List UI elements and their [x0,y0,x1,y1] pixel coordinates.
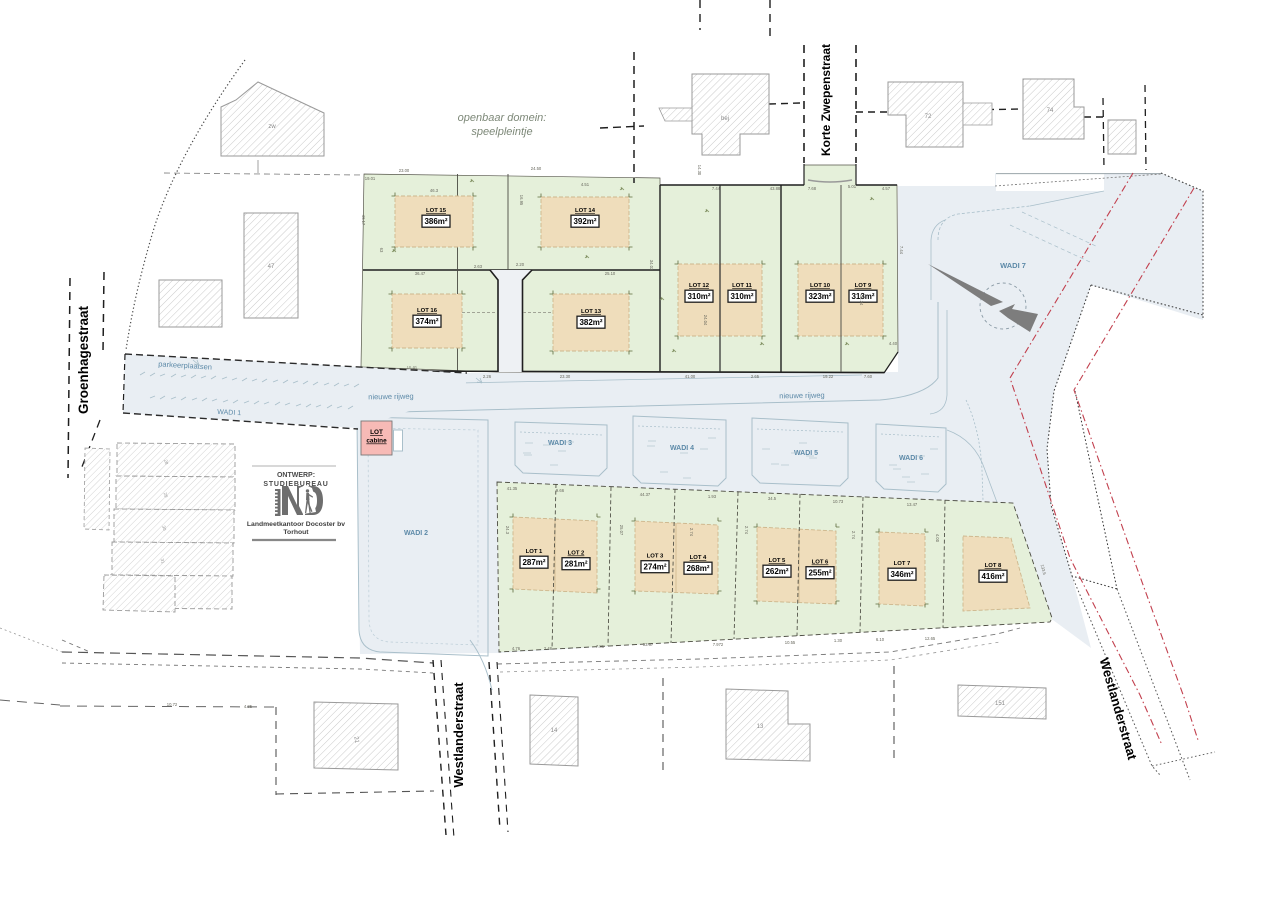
svg-text:2.74: 2.74 [851,531,856,540]
svg-text:LOT 11: LOT 11 [732,283,752,289]
svg-text:374m²: 374m² [415,317,438,326]
svg-text:74: 74 [1047,108,1054,114]
svg-text:LOT 12: LOT 12 [689,283,710,289]
svg-text:2.74: 2.74 [689,528,694,537]
svg-text:19.01: 19.01 [365,176,376,181]
svg-text:46.3: 46.3 [430,188,439,193]
svg-text:LOT 7: LOT 7 [894,561,911,567]
svg-text:4.40: 4.40 [889,341,898,346]
svg-text:310m²: 310m² [687,292,710,301]
svg-text:7.44: 7.44 [899,246,904,255]
svg-text:287m²: 287m² [522,558,545,567]
svg-text:4.35: 4.35 [244,704,253,709]
svg-text:262m²: 262m² [765,567,788,576]
svg-text:19.22: 19.22 [823,374,834,379]
svg-text:7.60: 7.60 [864,374,873,379]
svg-text:LOT 13: LOT 13 [581,309,602,315]
svg-text:255m²: 255m² [808,569,831,578]
svg-text:7.44: 7.44 [712,186,721,191]
svg-text:13.47: 13.47 [907,502,918,507]
svg-text:9.66: 9.66 [556,488,565,493]
svg-text:Torhout: Torhout [283,529,309,536]
svg-text:LOT 9: LOT 9 [855,283,872,289]
svg-text:151: 151 [995,701,1006,707]
svg-text:2.74: 2.74 [744,526,749,535]
svg-text:Westlanderstraat: Westlanderstraat [451,682,466,788]
svg-text:310m²: 310m² [730,292,753,301]
svg-text:25.07: 25.07 [619,525,624,536]
svg-text:14.30: 14.30 [697,165,702,176]
svg-text:281m²: 281m² [564,560,587,569]
svg-text:WADI 1: WADI 1 [217,409,241,417]
svg-text:speelpleintje: speelpleintje [471,126,532,138]
svg-text:LOT 14: LOT 14 [575,208,596,214]
svg-text:1.30: 1.30 [834,638,843,643]
svg-text:16.95: 16.95 [519,195,524,206]
svg-text:LOT: LOT [370,429,383,436]
svg-text:268m²: 268m² [686,564,709,573]
svg-text:44.37: 44.37 [640,492,651,497]
svg-text:15.41: 15.41 [407,365,418,371]
svg-text:24.3: 24.3 [505,526,510,535]
svg-text:LOT 5: LOT 5 [769,558,786,564]
svg-text:LOT 8: LOT 8 [985,563,1002,569]
svg-text:23.30: 23.30 [560,374,571,379]
svg-text:2.26: 2.26 [483,374,492,379]
svg-text:24.04: 24.04 [703,315,708,326]
svg-text:LOT 16: LOT 16 [417,308,438,314]
svg-text:10.73: 10.73 [833,499,844,504]
svg-text:nieuwe rijweg: nieuwe rijweg [368,392,414,402]
svg-text:4.51: 4.51 [581,182,590,187]
svg-text:zw: zw [268,124,276,130]
svg-text:WADI 3: WADI 3 [548,440,572,447]
svg-text:4.76: 4.76 [512,646,521,651]
svg-text:LOT 1: LOT 1 [526,549,543,555]
svg-text:32.34: 32.34 [859,295,864,306]
svg-text:1.93: 1.93 [708,494,717,499]
svg-text:2.20: 2.20 [516,262,525,267]
svg-text:12.65: 12.65 [925,636,936,641]
svg-text:2.65: 2.65 [751,374,760,379]
svg-text:63: 63 [379,248,384,253]
svg-text:34.03: 34.03 [649,260,654,271]
svg-text:7.81: 7.81 [596,644,605,649]
svg-text:416m²: 416m² [981,572,1004,581]
svg-text:Groenhagestraat: Groenhagestraat [76,305,91,414]
svg-text:Korte Zwepenstraat: Korte Zwepenstraat [819,44,833,156]
svg-text:bej: bej [721,116,729,122]
svg-text:24.50: 24.50 [531,166,542,171]
svg-text:274m²: 274m² [643,563,666,572]
svg-text:41.00: 41.00 [685,374,696,379]
svg-text:10.55: 10.55 [785,640,796,645]
svg-text:WADI 4: WADI 4 [670,445,694,452]
svg-text:386m²: 386m² [424,217,447,226]
svg-text:10.72: 10.72 [167,702,178,707]
svg-text:13: 13 [757,724,764,730]
svg-text:34.5: 34.5 [768,496,777,501]
svg-text:7.68: 7.68 [808,186,817,191]
svg-text:cabine: cabine [366,438,387,445]
svg-text:6.10: 6.10 [876,637,885,642]
svg-text:4.57: 4.57 [882,186,891,191]
svg-text:LOT 10: LOT 10 [810,283,831,289]
svg-text:346m²: 346m² [890,570,913,579]
svg-text:LOT 15: LOT 15 [426,208,447,214]
svg-text:4.00: 4.00 [935,534,940,543]
svg-text:LOT 2: LOT 2 [568,551,585,557]
svg-text:36.47: 36.47 [415,271,426,276]
svg-text:7.972: 7.972 [713,642,724,647]
svg-text:392m²: 392m² [573,217,596,226]
svg-text:WADI 2: WADI 2 [404,530,428,537]
svg-text:72: 72 [925,114,932,120]
svg-text:WADI 7: WADI 7 [1000,261,1026,270]
svg-text:41.35: 41.35 [507,486,518,491]
svg-text:2.46: 2.46 [544,646,553,651]
svg-text:2.63: 2.63 [474,264,483,269]
svg-text:Landmeetkantoor Docoster bv: Landmeetkantoor Docoster bv [247,521,345,528]
svg-text:25.10: 25.10 [605,271,616,276]
svg-text:STUDIEBUREAU: STUDIEBUREAU [263,481,328,488]
svg-text:nieuwe rijweg: nieuwe rijweg [779,391,825,401]
svg-text:46.17: 46.17 [361,215,366,226]
svg-text:14: 14 [551,728,558,734]
svg-text:LOT 3: LOT 3 [647,554,664,560]
svg-text:5.01: 5.01 [848,184,857,189]
svg-text:382m²: 382m² [579,318,602,327]
svg-text:23.00: 23.00 [399,168,410,173]
svg-text:43.88: 43.88 [770,186,781,191]
svg-text:ONTWERP:: ONTWERP: [277,472,315,479]
svg-text:323m²: 323m² [808,292,831,301]
svg-text:47: 47 [268,264,275,270]
svg-text:13.67: 13.67 [643,642,654,647]
svg-text:openbaar domein:: openbaar domein: [458,112,547,124]
svg-text:LOT 4: LOT 4 [690,555,707,561]
svg-text:LOT 6: LOT 6 [812,560,829,566]
